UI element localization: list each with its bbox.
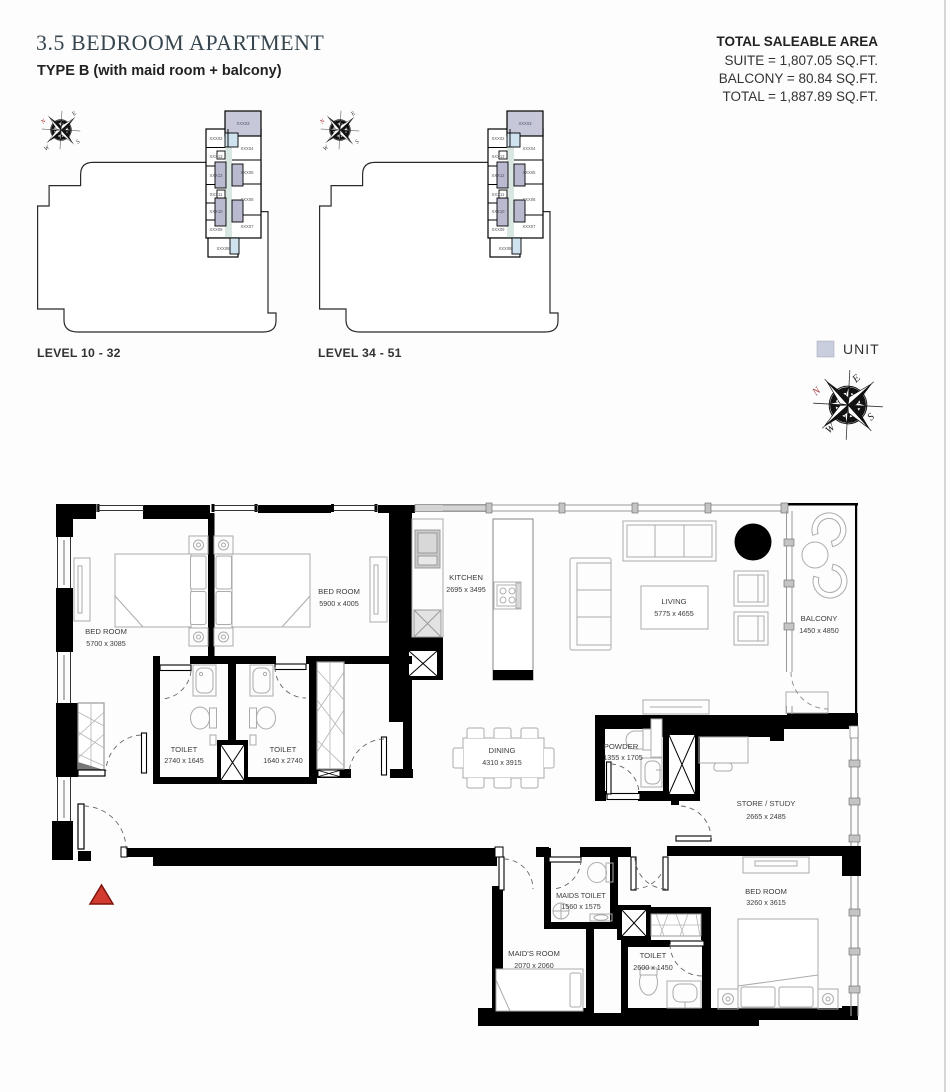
svg-text:5700 x 3085: 5700 x 3085 — [86, 639, 126, 648]
svg-text:BALCONY = 80.84 SQ.FT.: BALCONY = 80.84 SQ.FT. — [719, 71, 878, 86]
svg-text:MAIDS TOILET: MAIDS TOILET — [556, 891, 606, 900]
svg-text:1560 x 1575: 1560 x 1575 — [561, 902, 601, 911]
svg-text:UNIT: UNIT — [843, 341, 880, 357]
svg-text:LIVING: LIVING — [661, 597, 686, 606]
svg-text:BALCONY: BALCONY — [801, 614, 838, 623]
svg-text:1640 x 2740: 1640 x 2740 — [263, 756, 303, 765]
svg-text:BED ROOM: BED ROOM — [85, 627, 127, 636]
svg-text:TOTAL = 1,887.89 SQ.FT.: TOTAL = 1,887.89 SQ.FT. — [723, 89, 878, 104]
svg-text:TOILET: TOILET — [640, 951, 667, 960]
svg-text:BED ROOM: BED ROOM — [745, 887, 787, 896]
svg-text:TOILET: TOILET — [270, 745, 297, 754]
svg-text:DINING: DINING — [489, 746, 516, 755]
svg-text:2665 x 2485: 2665 x 2485 — [746, 812, 786, 821]
svg-text:5775 x 4655: 5775 x 4655 — [654, 609, 694, 618]
svg-text:MAID'S ROOM: MAID'S ROOM — [508, 949, 560, 958]
svg-text:2600 x 1450: 2600 x 1450 — [633, 963, 673, 972]
svg-text:5900 x 4005: 5900 x 4005 — [319, 599, 359, 608]
svg-text:TOILET: TOILET — [171, 745, 198, 754]
svg-text:3.5 BEDROOM APARTMENT: 3.5 BEDROOM APARTMENT — [36, 31, 324, 55]
svg-text:TYPE B (with maid room + balco: TYPE B (with maid room + balcony) — [37, 63, 282, 79]
svg-text:2740 x 1645: 2740 x 1645 — [164, 756, 204, 765]
svg-text:1450 x 4850: 1450 x 4850 — [799, 626, 839, 635]
svg-text:LEVEL 34 - 51: LEVEL 34 - 51 — [318, 346, 402, 360]
svg-text:LEVEL 10 - 32: LEVEL 10 - 32 — [37, 346, 121, 360]
svg-text:TOTAL SALEABLE AREA: TOTAL SALEABLE AREA — [716, 34, 878, 49]
svg-text:KITCHEN: KITCHEN — [449, 573, 483, 582]
svg-text:BED ROOM: BED ROOM — [318, 587, 360, 596]
svg-text:3260 x 3615: 3260 x 3615 — [746, 898, 786, 907]
svg-text:2695 x 3495: 2695 x 3495 — [446, 585, 486, 594]
svg-text:SUITE = 1,807.05 SQ.FT.: SUITE = 1,807.05 SQ.FT. — [725, 53, 878, 68]
svg-text:POWDER: POWDER — [604, 742, 639, 751]
svg-text:4310 x 3915: 4310 x 3915 — [482, 758, 522, 767]
svg-text:STORE / STUDY: STORE / STUDY — [737, 799, 796, 808]
svg-text:1355 x 1705: 1355 x 1705 — [603, 753, 643, 762]
